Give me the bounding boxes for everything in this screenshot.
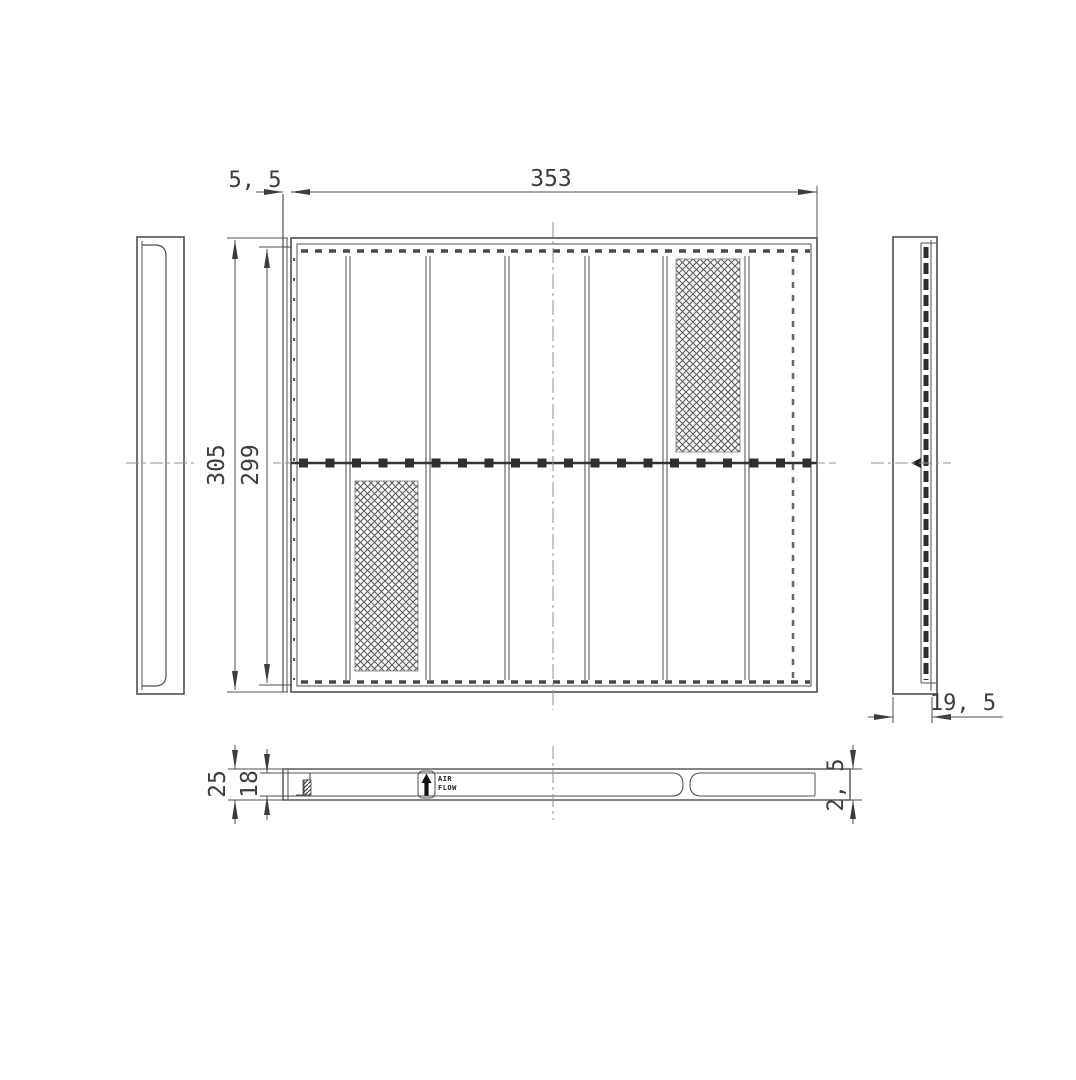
front-view (273, 194, 836, 710)
dim-25-text: 25 (205, 770, 231, 798)
mesh-panel-top (676, 259, 740, 452)
bottom-view-outline (283, 769, 850, 800)
left-view-inner-contour (142, 245, 166, 686)
dim-2-5-text: 2, 5 (824, 759, 849, 812)
air-flow-marker (418, 771, 435, 798)
right-view-outline (893, 237, 937, 694)
dim-18-text: 18 (237, 770, 263, 798)
dim-5-5-text: 5, 5 (229, 168, 282, 193)
dim-353-text: 353 (530, 166, 572, 192)
air-flow-text-line2: FLOW (438, 784, 457, 792)
technical-drawing-page: 19, 5 353 5, 5 305 299 (0, 0, 1076, 1080)
bottom-bracket-hatch (303, 780, 311, 795)
dim-305-text: 305 (204, 444, 230, 486)
dim-18 (260, 749, 296, 820)
bottom-media-slab-left (296, 773, 683, 796)
air-flow-text-line1: AIR (438, 775, 452, 783)
bottom-media-slab-right (690, 773, 815, 796)
left-view-outline (137, 237, 184, 694)
dim-299-text: 299 (238, 444, 264, 486)
left-side-view (126, 237, 196, 694)
dim-19-5-text: 19, 5 (930, 691, 996, 716)
air-flow-arrow-icon (422, 774, 432, 796)
filter-drawing: 19, 5 353 5, 5 305 299 (0, 0, 1076, 1080)
bottom-view (283, 746, 850, 820)
mesh-panel-bottom (355, 481, 418, 671)
right-side-view (871, 237, 951, 694)
dim-353 (291, 186, 817, 238)
